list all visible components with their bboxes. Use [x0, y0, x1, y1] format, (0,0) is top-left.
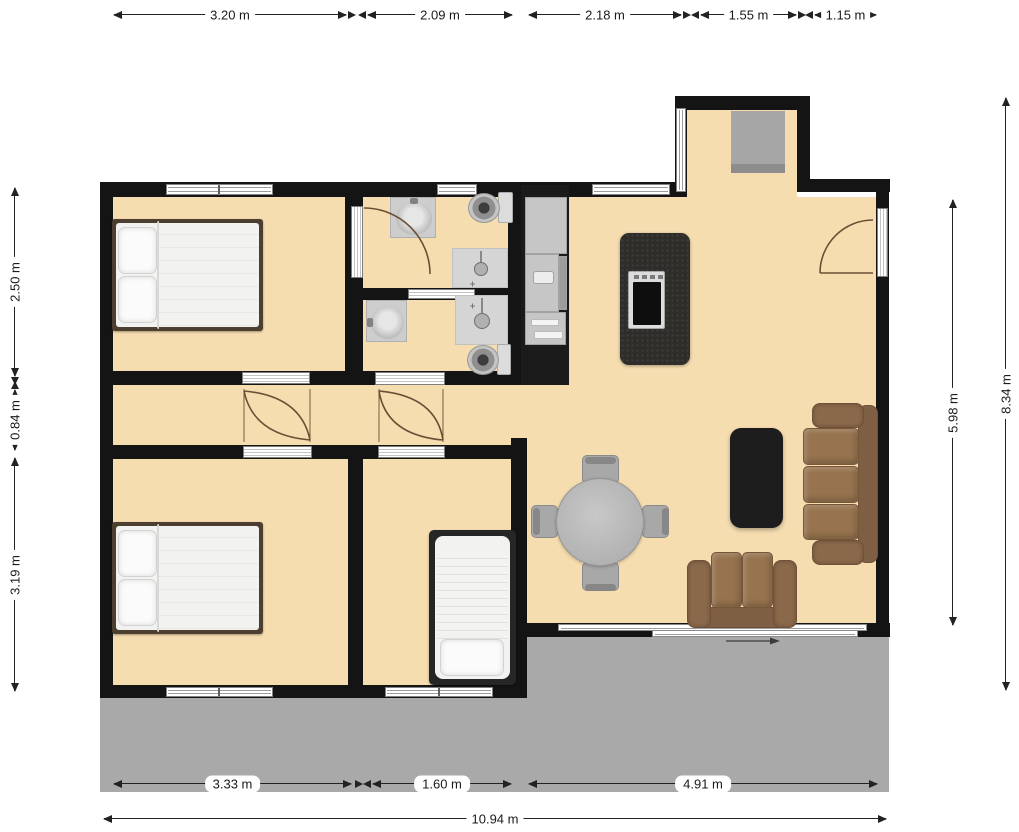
dimension-right-inner: 5.98 m [946, 199, 960, 626]
shower-tray [455, 295, 508, 345]
ensuite-door-leaf [351, 206, 363, 278]
floor-plan: 3.20 m 2.09 m 2.18 m 1.55 m 1.15 m 2.50 … [0, 0, 1019, 832]
dimension-label: 2.09 m [415, 8, 465, 23]
dimension-left-3: 3.19 m [8, 457, 22, 692]
dimension-label: 3.20 m [205, 8, 255, 23]
dimension-top-1: 3.20 m [113, 8, 347, 22]
washbasin-icon [366, 300, 407, 342]
washbasin-icon [390, 197, 436, 238]
dimension-label: 10.94 m [467, 812, 524, 827]
smallroom-window [385, 687, 493, 697]
sliding-door-panel [652, 630, 858, 637]
rug [730, 428, 783, 528]
dimension-label: 3.33 m [205, 776, 261, 793]
wall-bedroom2-smallroom [348, 445, 363, 698]
wall-tick-marks [8, 377, 22, 389]
dimension-bottom-1: 3.33 m [113, 777, 352, 791]
sofa-three-seat [803, 403, 878, 565]
wall-tick-marks [355, 777, 371, 791]
dining-chair [582, 562, 619, 591]
dining-chair [642, 505, 669, 538]
bedroom1-door-threshold [242, 372, 310, 384]
entry-door-leaf [877, 208, 888, 277]
wall-alcove-right [797, 96, 810, 192]
kitchen-sink-icon [533, 271, 554, 284]
dimension-label: 3.19 m [8, 550, 23, 600]
oven [525, 312, 566, 345]
dining-chair [531, 505, 558, 538]
toilet-tank [498, 192, 513, 223]
doormat-edge [731, 164, 785, 173]
dimension-right-outer: 8.34 m [999, 97, 1013, 691]
dining-table [556, 478, 644, 566]
pillow [118, 579, 157, 626]
bedroom2-door-threshold [243, 446, 312, 458]
kitchen-window [592, 184, 670, 195]
bathroom2-door-threshold [375, 372, 445, 385]
dimension-label: 2.50 m [8, 257, 23, 307]
dimension-left-1: 2.50 m [8, 187, 22, 377]
bedroom1-window [166, 184, 273, 195]
bedroom2-window [166, 687, 273, 697]
cooktop-icon [628, 271, 665, 329]
fridge [525, 197, 567, 254]
sofa-two-seat [687, 550, 797, 628]
single-bed [429, 530, 516, 685]
dimension-top-3: 2.18 m [528, 8, 682, 22]
toilet-tank [497, 344, 511, 375]
alcove-window [676, 108, 686, 192]
pillow [118, 276, 157, 323]
wall-tick-marks [798, 8, 813, 22]
double-bed [112, 522, 263, 634]
dimension-label: 0.84 m [8, 395, 23, 445]
dimension-label: 4.91 m [675, 776, 731, 793]
wall-alcove-top [675, 96, 810, 110]
wall-hallway-top [100, 371, 527, 385]
bathroom1-window [437, 184, 477, 195]
dimension-bottom-2: 1.60 m [372, 777, 512, 791]
dimension-label: 1.55 m [724, 8, 774, 23]
pillow [440, 639, 504, 676]
wall-tick-marks [348, 8, 366, 22]
pillow [118, 530, 157, 577]
shower-tray [452, 248, 508, 288]
pillow [118, 227, 157, 274]
dimension-top-2: 2.09 m [367, 8, 513, 22]
dimension-top-5: 1.15 m [814, 8, 877, 22]
kitchen-counter-edge [559, 256, 567, 310]
dimension-label: 8.34 m [999, 369, 1014, 419]
dimension-label: 5.98 m [946, 388, 961, 438]
toilet-icon [468, 193, 500, 223]
dimension-label: 1.60 m [414, 776, 470, 793]
kitchen-island [620, 233, 690, 365]
dimension-left-2: 0.84 m [8, 389, 22, 451]
dimension-top-4: 1.55 m [700, 8, 797, 22]
dimension-label: 2.18 m [580, 8, 630, 23]
dimension-label: 1.15 m [821, 8, 871, 23]
smallroom-door-threshold [378, 446, 445, 458]
wall-tick-marks [683, 8, 699, 22]
dimension-bottom-3: 4.91 m [528, 777, 878, 791]
dimension-total-width: 10.94 m [103, 812, 887, 826]
toilet-icon [467, 345, 499, 375]
terrace-area [527, 637, 889, 698]
double-bed [112, 219, 263, 331]
